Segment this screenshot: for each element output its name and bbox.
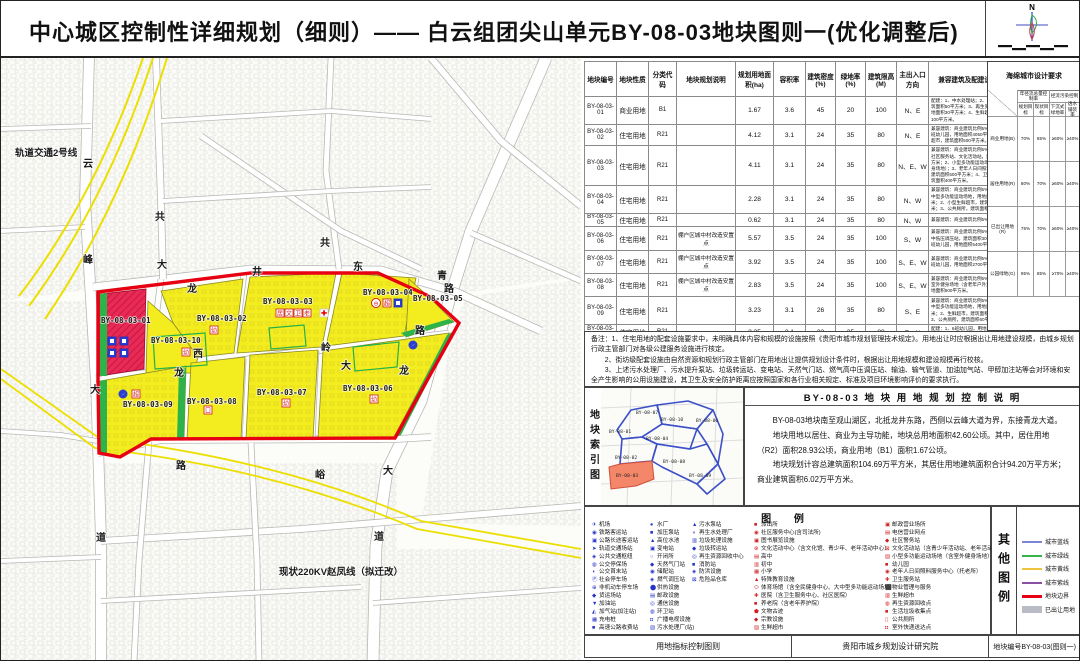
- svg-text:超: 超: [133, 390, 139, 398]
- legend-item: ▦充电桩: [592, 618, 616, 625]
- sponge-value: 70%: [1034, 162, 1050, 207]
- legend-item-label: 宗教设施: [761, 617, 783, 623]
- footer-sheet-number: 地块编号BY-08-03(图则一): [989, 636, 1080, 657]
- other-legend-label: 地块边界: [1045, 594, 1069, 600]
- legend-item: ▣变电站: [650, 547, 674, 554]
- legend-item-label: 污水处理厂(站): [657, 625, 694, 631]
- legend-item: ■加压泵站: [650, 531, 679, 538]
- map-layers: 轨道交通2号线现状220KV赵凤线（拟迁改）云峰大道共大龙井东路共青西岭大龙路龙…: [1, 58, 581, 661]
- index-map-side-label: 地块索引图: [585, 388, 602, 505]
- road-name-char: 路: [415, 324, 426, 337]
- north-label: N: [1029, 3, 1035, 12]
- sponge-corner: [988, 90, 1018, 117]
- legend-item-label: 加油站: [599, 601, 616, 607]
- legend-item: ◉社区服务中心(含司法所): [754, 531, 821, 538]
- legend-item-icon: ▨: [754, 626, 761, 631]
- legend-item-icon: ■: [754, 602, 761, 607]
- legend-item-label: 物业管理与服务: [892, 585, 931, 591]
- legend-item: ■高速公路收费站: [592, 626, 638, 633]
- road-name-char: 龙: [186, 282, 197, 295]
- scale-bar: [998, 45, 1068, 50]
- legend-item-icon: ◆: [692, 547, 699, 552]
- legend-item-label: 老年人日间照料服务中心（托老所）: [892, 569, 982, 575]
- facility-icon: 卫: [294, 309, 302, 317]
- sponge-value: 70%: [1034, 207, 1050, 252]
- legend-item-icon: ▤: [754, 555, 761, 560]
- legend-item-icon: ◈: [692, 570, 699, 575]
- road-name-char: 路: [176, 459, 187, 472]
- footer-bar: 用地指标控制图则 贵阳市城乡规划设计研究院 地块编号BY-08-03(图则一): [584, 635, 1080, 658]
- index-map-canvas: BY-08-07BY-08-10BY-08-06BY-08-01BY-08-04…: [601, 388, 743, 505]
- north-arrow-icon: N: [986, 1, 1080, 56]
- other-legend-item: 城市黄线: [1022, 564, 1069, 573]
- road-name-char: 井: [252, 265, 262, 278]
- road-name-char: 大: [90, 383, 100, 396]
- legend-item-label: 机场: [599, 522, 610, 528]
- legend-item: ▯公共厕所: [885, 618, 914, 625]
- legend-item-icon: ▼: [592, 602, 599, 607]
- other-legend-label: 城市绿线: [1045, 554, 1069, 560]
- legend-title: 图 例: [585, 510, 990, 525]
- svg-text:幼: 幼: [183, 348, 189, 356]
- legend-item-label: 派出所: [761, 522, 778, 528]
- sponge-city-table: 海绵城市设计要求 年径流总量控制率径流污染控制规划目标现状目标下沉式绿地率透水铺…: [987, 61, 1080, 331]
- sponge-row-label: 商业用地(B): [988, 117, 1018, 162]
- facility-icon: 文: [285, 309, 293, 317]
- parcel-label: BY-08-03-10: [151, 336, 201, 345]
- index-map-unit-label: BY-08-08: [663, 459, 685, 465]
- legend-item-icon: ▲: [650, 539, 657, 544]
- legend-item-icon: ⬭: [754, 586, 761, 591]
- sponge-group: 年径流总量控制率: [1018, 90, 1050, 103]
- legend-item-icon: ▲: [692, 523, 699, 528]
- parcel-label: BY-08-03-03: [263, 297, 313, 306]
- table-row: BY-08-03-07住宅用地R21棚户区城中村改造安置点3.923.52435…: [585, 251, 1021, 274]
- legend-item-icon: ▦: [754, 570, 761, 575]
- sponge-value: 75%: [1018, 207, 1034, 252]
- other-legend-item: 地块边界: [1022, 591, 1069, 600]
- table-row: BY-08-03-05住宅用地R210.623.1243580N、W兼容建筑：商…: [585, 214, 1021, 227]
- sponge-value: 85%: [1034, 252, 1050, 297]
- road-name-char: 龙: [398, 364, 409, 377]
- table-row: BY-08-03-08住宅用地R21棚户区城中村改造安置点2.833.52435…: [585, 274, 1021, 297]
- index-map-unit-label: BY-08-09: [689, 473, 711, 479]
- legend-item-icon: ◍: [592, 563, 599, 568]
- legend-item-label: 通信设施: [657, 601, 679, 607]
- sponge-value: ≥40%: [1066, 207, 1080, 252]
- index-map-unit-label: BY-08-01: [609, 429, 631, 435]
- facility-icon: 幼: [282, 399, 290, 407]
- facility-icon: [120, 349, 128, 357]
- road-name-char: 云: [83, 158, 93, 170]
- legend-item-label: 广播电视设施: [657, 617, 691, 623]
- other-legend-label: 已出让用地: [1045, 608, 1075, 614]
- other-legend-item: 城市绿线: [1022, 551, 1069, 560]
- sponge-value: ≥40%: [1066, 252, 1080, 297]
- legend-item-label: 变电站: [657, 546, 674, 552]
- legend-item-label: 轨道交通场站: [599, 546, 633, 552]
- facility-icon: 居: [276, 309, 284, 317]
- description-title: BY-08-03 地 块 用 地 规 划 控 制 说 明: [745, 388, 1080, 406]
- legend-item-label: 加压泵站: [657, 530, 679, 536]
- svg-text:文: 文: [286, 309, 292, 317]
- legend-item-label: 开闭所: [657, 554, 674, 560]
- legend-item-label: 公交首末站: [599, 569, 627, 575]
- sponge-row-label: 已出让用地(R): [988, 207, 1018, 252]
- title-bar: 中心城区控制性详细规划（细则）—— 白云组团尖山单元BY-08-03地块图则一(…: [1, 1, 1080, 58]
- planning-map: 轨道交通2号线现状220KV赵凤线（拟迁改）云峰大道共大龙井东路共青西岭大龙路龙…: [1, 58, 581, 661]
- legend-item-label: 再生资源回收中心: [699, 554, 744, 560]
- rail-line-label: 轨道交通2号线: [15, 147, 78, 159]
- legend-item-label: 危险品仓库: [699, 577, 727, 583]
- legend-item-icon: ⬟: [754, 610, 761, 615]
- legend-item: ▲污水泵站: [692, 523, 721, 530]
- column-header: 规划用地面积(ha): [736, 62, 774, 97]
- legend-item-label: 生鲜超市: [761, 625, 783, 631]
- column-header: 绿地率(%): [836, 62, 866, 97]
- legend-item-label: 电信营业网点: [892, 530, 926, 536]
- other-legend-label: 城市紫线: [1045, 581, 1069, 587]
- legend-item: ➤轨道交通场站: [592, 547, 633, 554]
- legend-item: ◆宗教设施: [754, 618, 783, 625]
- legend-item-label: 文化活动中心（含文化馆、青少年、老年活动中心）: [761, 546, 890, 552]
- legend-item-icon: ▦: [592, 618, 599, 623]
- sponge-value: ≥60%: [1050, 207, 1066, 252]
- description-block: BY-08-03 地 块 用 地 规 划 控 制 说 明 BY-08-03地块南…: [744, 387, 1080, 506]
- legend-item-icon: ⬤: [650, 586, 657, 591]
- parcel-label: BY-08-03-01: [101, 316, 151, 325]
- legend-item-label: 社会停车场: [599, 577, 627, 583]
- legend-item-icon: ▤: [885, 531, 892, 536]
- legend-item-label: 图书展览设施: [761, 538, 795, 544]
- line-swatch: [1022, 582, 1042, 584]
- legend-item-label: 铁路客运站: [599, 530, 627, 536]
- facility-icon: 超: [383, 299, 391, 307]
- legend-item-icon: ◖: [592, 570, 599, 575]
- legend-item-icon: ✈: [592, 523, 599, 528]
- legend-item-icon: ▣: [592, 539, 599, 544]
- legend-item-label: 养老院（含老年养护院）: [761, 601, 823, 607]
- legend-item-icon: ▥: [692, 539, 699, 544]
- legend-item-label: 再生水处理厂: [699, 530, 733, 536]
- sponge-city-grid: 年径流总量控制率径流污染控制规划目标现状目标下沉式绿地率透水铺装率商业用地(B)…: [988, 90, 1080, 330]
- legend-item-label: 幼儿园: [892, 562, 909, 568]
- legend-item-label: 水厂: [657, 522, 668, 528]
- legend-item: ●水厂: [650, 523, 668, 530]
- line-swatch: [1022, 595, 1042, 598]
- legend-item: ▨小型多功能运动场地（含室外健身场地）: [885, 555, 993, 562]
- index-map: BY-08-07BY-08-10BY-08-06BY-08-01BY-08-04…: [601, 388, 743, 505]
- legend-item: ○开闭所: [650, 555, 674, 562]
- legend-item-icon: ■: [692, 563, 699, 568]
- sponge-subheader: 透水铺装率: [1066, 103, 1080, 117]
- legend-item-label: 文物古迹: [761, 609, 783, 615]
- legend-item-label: 加气站(加注站): [599, 609, 636, 615]
- legend-item-label: 室外快递送达点: [892, 625, 931, 631]
- column-header: 主出入口方向: [897, 62, 929, 97]
- legend-item-label: 供热设施: [657, 585, 679, 591]
- legend-item-label: 文化活动站（含青少年活动站、老年活动站）: [892, 546, 1004, 552]
- legend-item: ■养老院（含老年养护院）: [754, 602, 823, 609]
- legend-item-icon: ◉: [754, 531, 761, 536]
- legend-item: ▤邮政设施: [650, 594, 679, 601]
- legend-item-icon: ◆: [885, 539, 892, 544]
- legend-item: ▤高中: [754, 555, 772, 562]
- legend-item-label: 消防站: [699, 562, 716, 568]
- legend-item-icon: ◘: [650, 618, 657, 623]
- legend-item-label: 小型多功能运动场地（含室外健身场地）: [892, 554, 993, 560]
- legend-item: ▥生鲜超市: [885, 594, 914, 601]
- legend-item: ◆社区警务站: [885, 539, 920, 546]
- other-legend-item: 城市蓝线: [1022, 537, 1069, 546]
- legend-item-icon: ◉: [650, 570, 657, 575]
- legend-item-icon: ◎: [692, 555, 699, 560]
- legend-item-label: 天然气门站: [657, 562, 685, 568]
- facility-icon: [394, 299, 402, 307]
- control-table-header: 地块编号地块性质分类代码地块规划说明规划用地面积(ha)容积率建筑密度(%)绿地…: [585, 62, 1021, 97]
- legend-item-label: 初中: [761, 562, 772, 568]
- legend-item: ✈机场: [592, 523, 610, 530]
- description-paragraph: 地块用地以居住、商业为主导功能，地块总用地面积42.60公顷。其中，居住用地（R…: [757, 429, 1068, 459]
- legend-item: ◍再生资源回收点: [885, 602, 931, 609]
- legend-item-icon: ▤: [650, 594, 657, 599]
- road-name-char: 龙: [173, 366, 184, 379]
- legend-item-label: 储配站: [657, 569, 674, 575]
- sponge-subheader: 现状目标: [1034, 103, 1050, 117]
- legend-item-icon: ✚: [885, 578, 892, 583]
- legend-item: ◎通信设施: [650, 602, 679, 609]
- facility-icon: [409, 341, 418, 350]
- sponge-subheader: 规划目标: [1018, 103, 1034, 117]
- table-row: BY-08-03-03住宅用地R214.113.1243580N、E、W兼容建筑…: [585, 146, 1021, 186]
- other-legend-item: 城市紫线: [1022, 578, 1069, 587]
- road-name-char: 东: [353, 260, 363, 273]
- legend-item-icon: ✚: [754, 594, 761, 599]
- legend-item-label: 污水泵站: [699, 522, 721, 528]
- legend-item-icon: ◈: [650, 578, 657, 583]
- legend-item-icon: ➤: [592, 547, 599, 552]
- legend-item-label: 生鲜超市: [892, 593, 914, 599]
- legend-item-icon: ◎: [650, 602, 657, 607]
- facility-icon: ⊖: [372, 299, 381, 308]
- svg-text:老: 老: [304, 309, 310, 317]
- legend-item: ⊠危险品仓库: [692, 578, 727, 585]
- column-header: 地块编号: [585, 62, 617, 97]
- parcel-label: BY-08-03-02: [197, 314, 247, 323]
- legend-item-icon: ▯: [885, 618, 892, 623]
- road-name-char: 岭: [321, 341, 331, 354]
- other-legend-label: 城市黄线: [1045, 567, 1069, 573]
- legend-item-icon: ▣: [754, 539, 761, 544]
- legend-item-icon: ◈: [592, 555, 599, 560]
- road-name-char: 大: [157, 258, 167, 271]
- sponge-value: ≥70%: [1050, 252, 1066, 297]
- legend-item-icon: ■: [754, 523, 761, 528]
- other-legend-side-label: 其他图例: [992, 507, 1017, 634]
- legend-item: ▼加油站: [592, 602, 616, 609]
- svg-text:幼: 幼: [371, 395, 377, 403]
- facility-icon: 幼: [370, 395, 378, 403]
- legend-item-icon: ◍: [650, 610, 657, 615]
- footer-sheet-type: 用地指标控制图则: [585, 636, 792, 657]
- legend-item-label: 特殊教育设施: [761, 577, 795, 583]
- legend-item: ✚医院（含卫生服务中心、社区医院）: [754, 594, 851, 601]
- legend-item: ▥垃圾处理设施: [692, 539, 733, 546]
- legend-item-icon: ◘: [885, 626, 892, 631]
- sponge-value: 70%: [1018, 117, 1034, 162]
- parcel-label: BY-08-03-06: [343, 384, 393, 393]
- legend-item-icon: ●: [650, 523, 657, 528]
- plan-sheet: 中心城区控制性详细规划（细则）—— 白云组团尖山单元BY-08-03地块图则一(…: [0, 0, 1080, 661]
- legend-item: ◑再生水处理厂: [692, 531, 733, 538]
- column-header: 分类代码: [649, 62, 677, 97]
- road-name-char: 西: [193, 348, 203, 360]
- table-row: BY-08-03-01商业用地B11.673.64520100N、E配建：1、中…: [585, 97, 1021, 125]
- table-row: BY-08-03-06住宅用地R21棚户区城中村改造安置点5.573.52435…: [585, 227, 1021, 251]
- index-map-block: 地块索引图 BY-08: [584, 387, 744, 506]
- legend-item-label: 货运场站: [599, 593, 621, 599]
- road-name-char: 共: [155, 210, 165, 223]
- road-name-char: 道: [374, 530, 384, 543]
- legend-item-icon: ⊠: [692, 578, 699, 583]
- facility-icon: 口: [204, 406, 212, 414]
- svg-text:幼: 幼: [211, 326, 217, 334]
- road-name-char: 大: [341, 359, 351, 372]
- legend-item-icon: ◍: [885, 602, 892, 607]
- page-title: 中心城区控制性详细规划（细则）—— 白云组团尖山单元BY-08-03地块图则一(…: [29, 15, 959, 47]
- svg-text:居: 居: [277, 310, 283, 317]
- column-header: 建筑限高(M): [866, 62, 897, 97]
- sponge-value: ≥60%: [1050, 162, 1066, 207]
- parcel-label: BY-08-03-05: [413, 294, 463, 303]
- legend-item-label: 垃圾处理设施: [699, 538, 733, 544]
- legend-item-label: 防洪设施: [699, 569, 721, 575]
- legend-item-label: 小学: [761, 569, 772, 575]
- facility-icon: [108, 349, 116, 357]
- facility-icon: ✚: [320, 309, 328, 318]
- legend-item-label: 邮政设施: [657, 593, 679, 599]
- legend-item-label: 再生资源回收点: [892, 601, 931, 607]
- legend-item-label: 高中: [761, 554, 772, 560]
- legend-item-icon: ▥: [885, 594, 892, 599]
- legend-item: ▧污水处理厂(站): [650, 626, 694, 633]
- legend-item-icon: ◆: [592, 594, 599, 599]
- line-swatch: [1022, 568, 1042, 570]
- legend-item-icon: ▨: [885, 555, 892, 560]
- legend-item-icon: Ⓟ: [592, 578, 599, 583]
- other-legend-item: 已出让用地: [1022, 605, 1075, 614]
- legend-item-icon: ■: [885, 563, 892, 568]
- index-map-unit-label: BY-08-10: [661, 417, 683, 423]
- column-header: 地块规划说明: [677, 62, 736, 97]
- sponge-value: ≥40%: [1066, 117, 1080, 162]
- sponge-row-label: 居住用地(R): [988, 162, 1018, 207]
- sponge-value: ≥60%: [1050, 117, 1066, 162]
- svg-text:超: 超: [384, 299, 390, 307]
- column-header: 建筑密度(%): [806, 62, 836, 97]
- legend-item-label: 社区警务站: [892, 538, 920, 544]
- facility-icon: [119, 390, 128, 399]
- legend-item-label: 高速公路收费站: [599, 625, 638, 631]
- legend-item-icon: ▥: [754, 563, 761, 568]
- legend-item-label: 生活垃圾收集点: [892, 609, 931, 615]
- line-swatch: [1022, 541, 1042, 543]
- other-legend: 其他图例 城市蓝线城市绿线城市黄线城市紫线地块边界已出让用地: [991, 506, 1080, 635]
- legend-item-label: 充电桩: [599, 617, 616, 623]
- description-paragraph: 地块规划计容总建筑面积104.69万平方米，其居住用地建筑面积合计94.20万平…: [757, 458, 1068, 488]
- table-row: BY-08-03-04住宅用地R212.283.1243580N、W兼容建筑：商…: [585, 186, 1021, 214]
- svg-text:✚: ✚: [321, 310, 327, 318]
- svg-text:⊖: ⊖: [373, 301, 378, 307]
- legend-item: ▣图书展览设施: [754, 539, 795, 546]
- legend-item: ◭加气站(加注站): [592, 610, 636, 617]
- legend-item-label: 高位水池: [657, 538, 679, 544]
- svg-text:卫: 卫: [295, 310, 301, 317]
- legend-item: ▨生鲜超市: [754, 626, 783, 633]
- legend-item-icon: ■: [885, 610, 892, 615]
- other-legend-label: 城市蓝线: [1045, 540, 1069, 546]
- legend-item: ◍环卫站: [650, 610, 674, 617]
- facility-icon: [120, 337, 128, 345]
- road-name-char: 共: [320, 236, 330, 249]
- legend-item: ◘室外快递送达点: [885, 626, 931, 633]
- legend-item-label: 公共厕所: [892, 617, 914, 623]
- facility-icon: 老: [303, 309, 311, 317]
- parcel-label: BY-08-03-09: [123, 400, 173, 409]
- legend-item-label: 公共交通枢纽: [599, 554, 633, 560]
- legend-item-icon: ◆: [650, 563, 657, 568]
- north-compass: N: [985, 1, 1080, 56]
- sponge-subheader: 下沉式绿地率: [1050, 103, 1066, 117]
- table-row: BY-08-03-02住宅用地R214.123.1243580N、E兼容建筑：商…: [585, 124, 1021, 146]
- legend-item: ▤电信营业网点: [885, 531, 926, 538]
- legend-item-icon: ▣: [650, 547, 657, 552]
- legend-item-label: 非机动车停车场: [599, 585, 638, 591]
- legend-item: ⊗文化活动中心（含文化馆、青少年、老年活动中心）: [754, 547, 890, 554]
- legend-item-label: 垃圾转运站: [699, 546, 727, 552]
- column-header: 地块性质: [617, 62, 649, 97]
- legend-item-label: 公路长途客运站: [599, 538, 638, 544]
- legend: 图 例 ✈机场◉铁路客运站▣公路长途客运站➤轨道交通场站◈公共交通枢纽◍公交停保…: [584, 506, 991, 635]
- legend-item: ◉铁路客运站: [592, 531, 627, 538]
- legend-item-label: 社区服务中心(含司法所): [761, 530, 821, 536]
- svg-text:幼: 幼: [283, 399, 289, 407]
- legend-item-icon: ◑: [692, 531, 699, 536]
- index-map-unit-label: BY-08-04: [646, 436, 668, 442]
- legend-item-label: 体育场馆（含全民健身中心、大中型多功能运动场地）: [761, 585, 895, 591]
- road-name-char: 道: [96, 531, 106, 544]
- legend-item-icon: ◆: [754, 618, 761, 623]
- legend-item-icon: ▧: [650, 626, 657, 631]
- road-name-char: 峰: [83, 253, 94, 266]
- legend-item-icon: ▲: [754, 578, 761, 583]
- footer-institute: 贵阳市城乡规划设计研究院: [792, 636, 989, 657]
- fill-swatch: [1022, 606, 1042, 613]
- column-header: 容积率: [774, 62, 806, 97]
- svg-text:口: 口: [205, 407, 211, 414]
- description-body: BY-08-03地块南至观山湖区，北抵龙井东路，西侧以云峰大道为界，东接青龙大道…: [745, 406, 1080, 496]
- legend-item-icon: ■: [650, 531, 657, 536]
- legend-item-icon: ■: [592, 626, 599, 631]
- sponge-value: ≥40%: [1066, 162, 1080, 207]
- legend-item-label: 公交停保场: [599, 562, 627, 568]
- index-map-unit-label: BY-08-02: [615, 455, 637, 461]
- legend-item: ◘广播电视设施: [650, 618, 691, 625]
- sponge-value: 80%: [1018, 162, 1034, 207]
- legend-item-icon: ⊠: [885, 547, 892, 552]
- parcel-label: BY-08-03-07: [257, 388, 307, 397]
- index-map-unit-label: BY-08-03: [616, 473, 638, 479]
